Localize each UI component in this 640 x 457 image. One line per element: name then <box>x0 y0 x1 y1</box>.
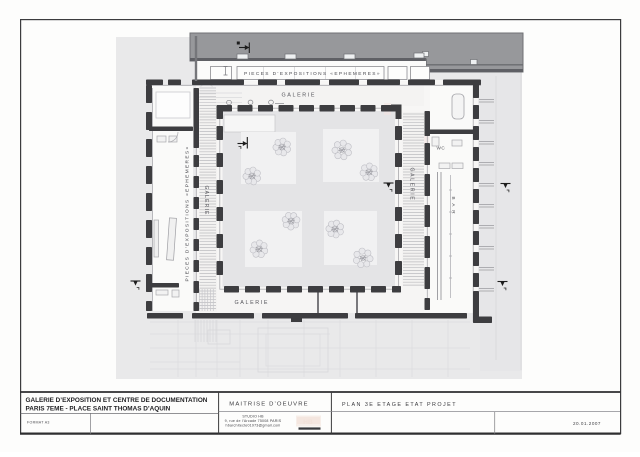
svg-text:GALERIE: GALERIE <box>203 186 209 216</box>
svg-text:hbarchitecte01973@gmail.com: hbarchitecte01973@gmail.com <box>226 424 281 428</box>
svg-text:WC: WC <box>437 146 446 151</box>
svg-text:PLAN 3E ETAGE ETAT PROJET: PLAN 3E ETAGE ETAT PROJET <box>342 402 457 408</box>
svg-text:FORMAT A3: FORMAT A3 <box>27 420 50 424</box>
svg-text:BAR: BAR <box>451 197 456 218</box>
svg-text:GALERIE: GALERIE <box>409 168 415 202</box>
svg-text:GALERIE D’EXPOSITION ET CENTR: GALERIE D’EXPOSITION ET CENTRE DE DOCUME… <box>26 397 208 404</box>
svg-text:GALERIE: GALERIE <box>282 93 317 99</box>
svg-text:20.01.2007: 20.01.2007 <box>573 421 601 426</box>
svg-text:PIECES D’EXPOSITIONS «EPHEMERE: PIECES D’EXPOSITIONS «EPHEMERES» <box>185 146 191 282</box>
svg-text:9, rue de l’Arcade 75008 PARIS: 9, rue de l’Arcade 75008 PARIS <box>225 419 282 423</box>
svg-text:MAITRISE D’OEUVRE: MAITRISE D’OEUVRE <box>229 401 308 407</box>
svg-text:PIECES D’EXPOSITIONS «EPHEMERE: PIECES D’EXPOSITIONS «EPHEMERES» <box>244 71 381 77</box>
svg-text:GALERIE: GALERIE <box>235 300 270 306</box>
svg-text:STUDIO HB: STUDIO HB <box>242 415 264 419</box>
svg-text:PARIS 7EME - PLACE SAINT THOMA: PARIS 7EME - PLACE SAINT THOMAS D’AQUIN <box>26 405 171 412</box>
